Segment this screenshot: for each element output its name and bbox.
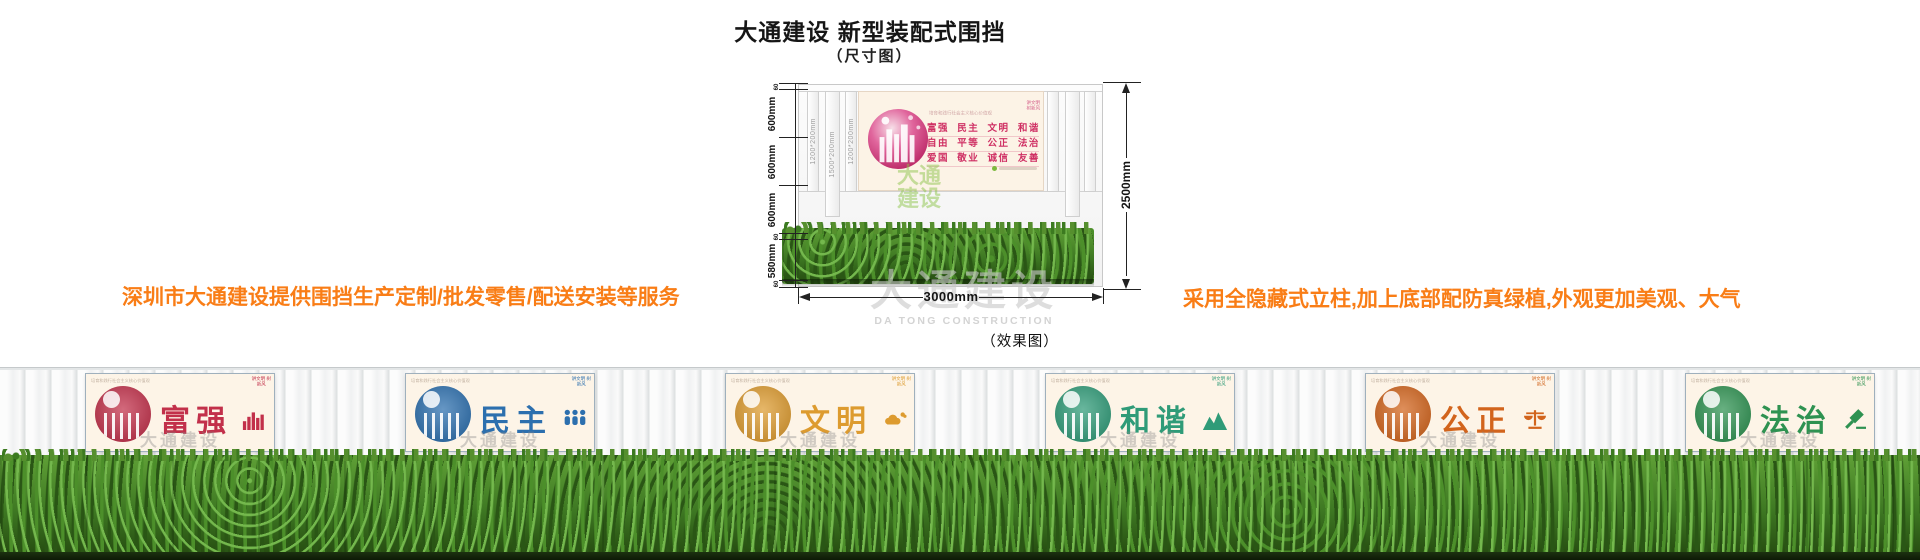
- fence-post: [1065, 91, 1080, 217]
- watermark-line: 大通: [897, 163, 941, 188]
- watermark-line: 建设: [897, 186, 941, 211]
- diagram-hedge: [782, 228, 1094, 284]
- panel-corner-text: 讲文明 树新风: [252, 377, 272, 388]
- height-dimension-chain: 60 600mm 600mm 600mm 60 580mm 60: [757, 84, 804, 287]
- dimension-diagram-caption: （尺寸图）: [827, 45, 912, 66]
- panel-watermark: 大通建设: [86, 426, 274, 451]
- panel-watermark: 大通建设: [406, 426, 594, 451]
- panel-corner-text: 讲文明 树新风: [892, 377, 912, 388]
- panel-header-text: 培育和践行社会主义核心价值观: [411, 377, 501, 383]
- dim-segment: 600mm: [757, 90, 804, 138]
- panel-corner-text: 讲文明 树新风: [572, 377, 592, 388]
- effect-panel-justice: 培育和践行社会主义核心价值观 讲文明 树新风 公正 大通建设: [1365, 373, 1555, 452]
- fence-post: [1084, 91, 1096, 192]
- panel-header-text: 培育和践行社会主义核心价值观: [1051, 377, 1141, 383]
- dim-segment: 600mm: [757, 186, 804, 234]
- core-values-panel: 培育和践行社会主义核心价值观 富强 民主 文明 和谐 自由 平等 公正 法治 爱…: [858, 91, 1044, 191]
- effect-panel-prosperity: 培育和践行社会主义核心价值观 讲文明 树新风 富强 大通建设: [85, 373, 275, 452]
- panel-corner-text: 讲文明 树新风: [1532, 377, 1552, 388]
- dim-segment: 600mm: [757, 138, 804, 186]
- arrow-down-icon: [1122, 279, 1130, 289]
- fence-post: 1200*200mm: [807, 91, 819, 192]
- corner-line: 树新风: [1026, 106, 1040, 111]
- effect-hedge: [0, 455, 1920, 558]
- panel-header-text: 培育和践行社会主义核心价值观: [1691, 377, 1781, 383]
- total-width-label: 3000mm: [923, 289, 978, 304]
- dim-segment: 580mm: [757, 240, 804, 281]
- total-height-label: 2500mm: [1119, 161, 1133, 209]
- panel-header-text: 培育和践行社会主义核心价值观: [1371, 377, 1461, 383]
- panel-watermark: 大通建设: [726, 426, 914, 451]
- dimension-line: [1126, 212, 1127, 276]
- post-size-label: 1200*200mm: [810, 118, 817, 165]
- dimension-line: [979, 297, 1093, 298]
- service-note: 深圳市大通建设提供围挡生产定制/批发零售/配送安装等服务: [122, 281, 680, 311]
- footnote-bar: [999, 167, 1037, 170]
- arrow-right-icon: [1092, 293, 1103, 301]
- fence-post: [1047, 91, 1059, 192]
- page-title: 大通建设 新型装配式围挡: [734, 13, 1005, 47]
- prosperity-circle-art: [867, 108, 929, 170]
- corner-slogan: 讲文明 树新风: [1026, 101, 1040, 112]
- panel-header-text: 培育和践行社会主义核心价值观: [731, 377, 821, 383]
- total-height-dimension: 2500mm: [1103, 80, 1149, 290]
- watermark-en: DA TONG CONSTRUCTION: [858, 315, 1070, 327]
- product-poster: 大通建设 新型装配式围挡 （尺寸图） 深圳市大通建设提供围挡生产定制/批发零售/…: [0, 0, 1920, 560]
- panel-corner-text: 讲文明 树新风: [1212, 377, 1232, 388]
- fence-post: 1500*200mm: [825, 91, 840, 217]
- panel-corner-text: 讲文明 树新风: [1852, 377, 1872, 388]
- hedge-shadow: [0, 552, 1920, 560]
- post-size-label: 1200*200mm: [848, 118, 855, 165]
- feature-note: 采用全隐藏式立柱,加上底部配防真绿植,外观更加美观、大气: [1183, 283, 1741, 313]
- slogan-header: 培育和践行社会主义核心价值观: [929, 109, 992, 116]
- green-dot-icon: [992, 166, 997, 171]
- panel-watermark: 大通建设: [1046, 426, 1234, 451]
- panel-watermark: 大通建设: [1686, 426, 1874, 451]
- values-row: 爱国 敬业 诚信 友善: [927, 150, 1039, 167]
- post-size-label: 1500*200mm: [829, 131, 836, 178]
- effect-diagram-caption: （效果图）: [981, 330, 1059, 351]
- panel-footnote: [992, 166, 1037, 171]
- panel-watermark: 大通建设: [1366, 426, 1554, 451]
- effect-panel-democracy: 培育和践行社会主义核心价值观 讲文明 树新风 民主 大通建设: [405, 373, 595, 452]
- fence-post: 1200*200mm: [845, 91, 857, 192]
- dimension-tick: [1103, 289, 1141, 290]
- dimension-line: [1126, 92, 1127, 158]
- panel-header-text: 培育和践行社会主义核心价值观: [91, 377, 181, 383]
- effect-panel-harmony: 培育和践行社会主义核心价值观 讲文明 树新风 和谐 大通建设: [1045, 373, 1235, 452]
- dimension-line: [809, 297, 923, 298]
- green-brand-watermark: 大通 建设: [895, 164, 943, 210]
- effect-panel-rule-of-law: 培育和践行社会主义核心价值观 讲文明 树新风 法治 大通建设: [1685, 373, 1875, 452]
- total-width-dimension: 3000mm: [796, 288, 1106, 308]
- dimension-tick: [1103, 288, 1104, 304]
- effect-panel-civility: 培育和践行社会主义核心价值观 讲文明 树新风 文明 大通建设: [725, 373, 915, 452]
